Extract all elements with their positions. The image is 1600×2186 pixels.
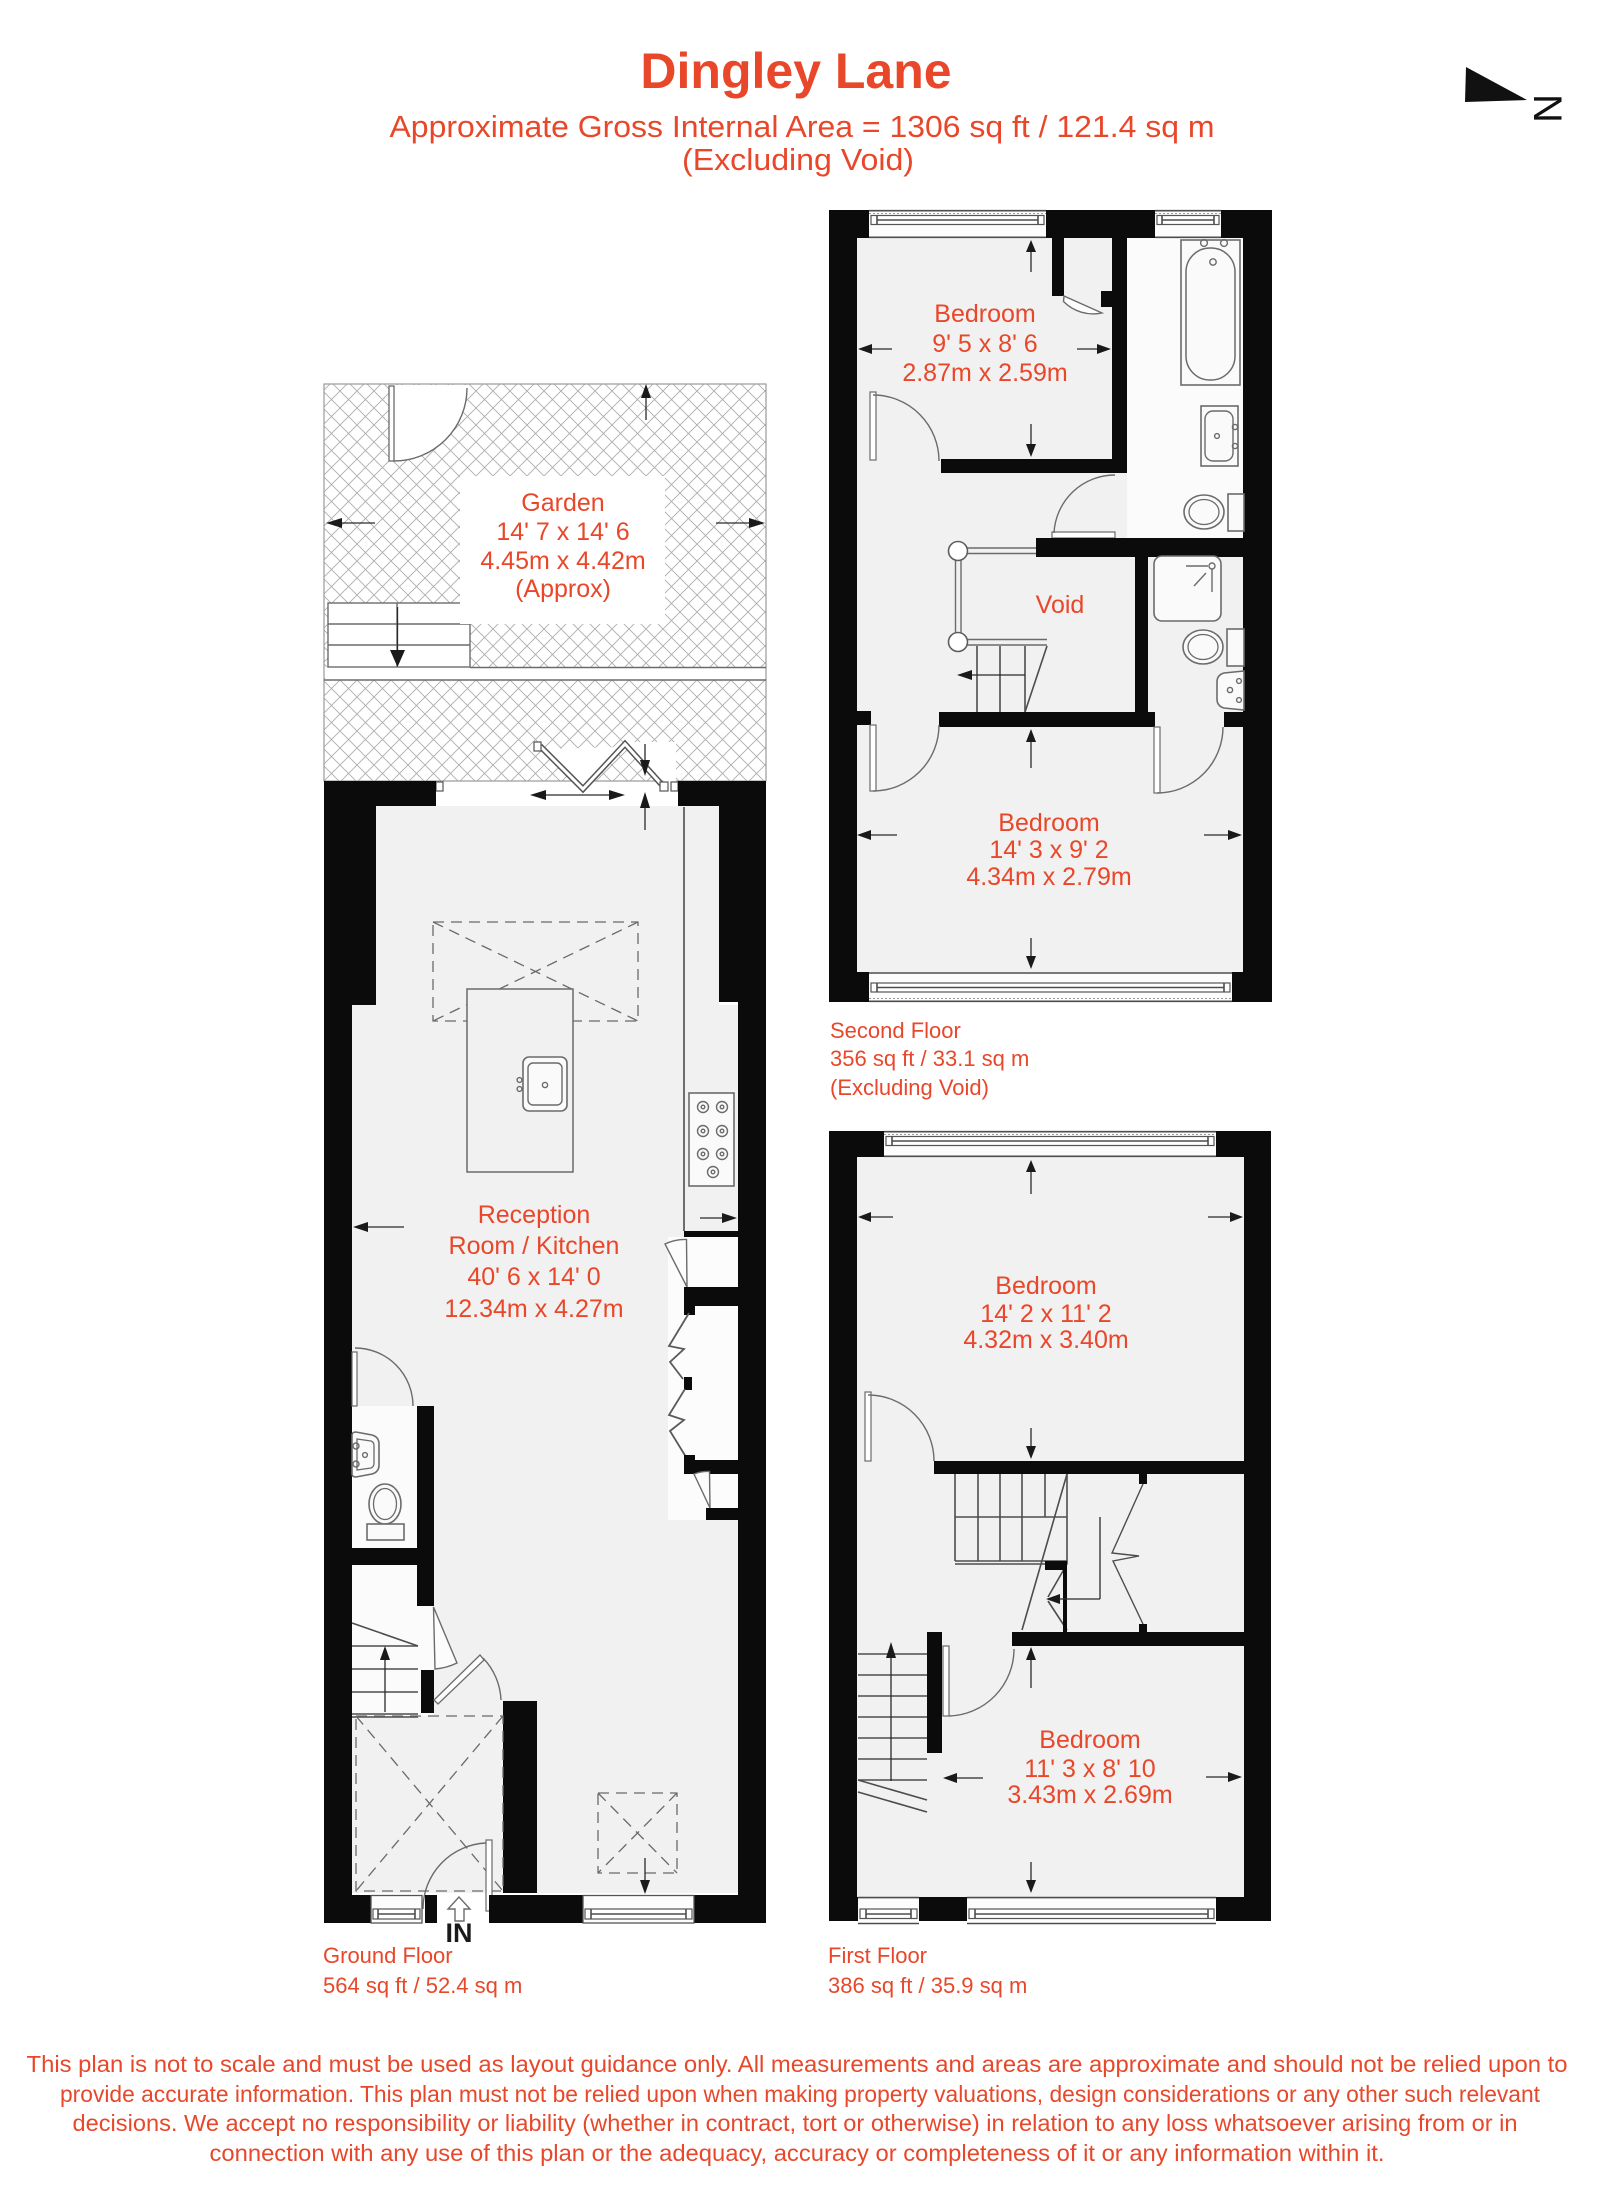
svg-text:Void: Void	[1036, 591, 1085, 619]
svg-text:Garden: Garden	[521, 489, 604, 517]
svg-text:First Floor: First Floor	[828, 1943, 927, 1968]
svg-text:Second Floor: Second Floor	[830, 1018, 961, 1043]
svg-text:2.87m x 2.59m: 2.87m x 2.59m	[902, 359, 1067, 387]
svg-text:9' 5 x 8' 6: 9' 5 x 8' 6	[932, 330, 1037, 358]
svg-text:Dingley Lane: Dingley Lane	[640, 43, 951, 99]
svg-text:40' 6 x 14' 0: 40' 6 x 14' 0	[467, 1263, 600, 1291]
svg-text:decisions. We accept no respon: decisions. We accept no responsibility o…	[73, 2110, 1518, 2136]
svg-text:Ground Floor: Ground Floor	[323, 1943, 453, 1968]
svg-text:356 sq ft / 33.1 sq m: 356 sq ft / 33.1 sq m	[830, 1046, 1029, 1071]
svg-text:(Excluding Void): (Excluding Void)	[830, 1075, 989, 1100]
svg-text:Room / Kitchen: Room / Kitchen	[449, 1232, 620, 1260]
svg-text:14' 3 x 9' 2: 14' 3 x 9' 2	[989, 836, 1108, 864]
svg-text:Bedroom: Bedroom	[995, 1272, 1096, 1300]
svg-text:12.34m x 4.27m: 12.34m x 4.27m	[444, 1295, 623, 1323]
svg-text:This plan is not to scale and: This plan is not to scale and must be us…	[27, 2051, 1568, 2077]
svg-text:Approximate Gross Internal Are: Approximate Gross Internal Area = 1306 s…	[390, 109, 1215, 144]
svg-text:Bedroom: Bedroom	[934, 300, 1035, 328]
svg-text:N: N	[1525, 94, 1569, 123]
svg-text:4.34m x 2.79m: 4.34m x 2.79m	[966, 863, 1131, 891]
svg-text:386 sq ft / 35.9 sq m: 386 sq ft / 35.9 sq m	[828, 1973, 1027, 1998]
svg-text:14' 7 x 14' 6: 14' 7 x 14' 6	[496, 518, 629, 546]
svg-text:Reception: Reception	[478, 1201, 591, 1229]
svg-text:(Excluding Void): (Excluding Void)	[682, 142, 914, 177]
svg-text:provide accurate information.: provide accurate information. This plan …	[60, 2081, 1541, 2107]
svg-text:3.43m x 2.69m: 3.43m x 2.69m	[1007, 1781, 1172, 1809]
svg-text:564 sq ft / 52.4 sq m: 564 sq ft / 52.4 sq m	[323, 1973, 522, 1998]
svg-text:connection with any use of thi: connection with any use of this plan or …	[210, 2140, 1385, 2166]
svg-text:(Approx): (Approx)	[515, 575, 611, 603]
svg-text:Bedroom: Bedroom	[998, 809, 1099, 837]
svg-text:14' 2 x 11' 2: 14' 2 x 11' 2	[980, 1300, 1111, 1328]
svg-text:4.45m x 4.42m: 4.45m x 4.42m	[480, 547, 645, 575]
svg-text:Bedroom: Bedroom	[1039, 1726, 1140, 1754]
svg-text:11' 3 x 8' 10: 11' 3 x 8' 10	[1024, 1755, 1155, 1783]
svg-text:4.32m x 3.40m: 4.32m x 3.40m	[963, 1326, 1128, 1354]
